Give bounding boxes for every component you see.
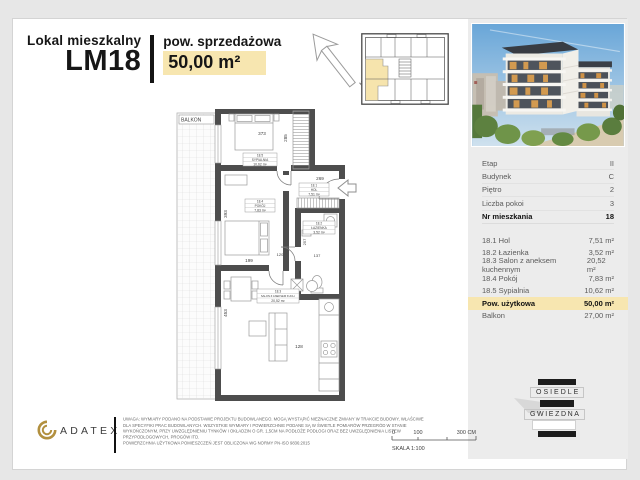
info-row-liczba-pokoi: Liczba pokoi 3 — [482, 197, 614, 210]
dimension-label: 453 — [223, 309, 228, 317]
svg-text:7,83 m²: 7,83 m² — [254, 208, 266, 212]
svg-text:POKÓJ: POKÓJ — [255, 203, 266, 208]
key-plan — [361, 33, 449, 105]
disclaimer-text: UWAGA: WYMIARY PODANO NA PODSTAWIE PROJE… — [123, 417, 375, 447]
svg-text:SYPIALNIA: SYPIALNIA — [252, 158, 269, 162]
building-photo — [471, 23, 625, 147]
svg-text:HOL: HOL — [311, 188, 318, 192]
svg-text:18.3: 18.3 — [275, 290, 281, 294]
estate-name-line2: GWIEZDNA — [524, 409, 585, 420]
dimension-label: 285 — [283, 134, 288, 142]
info-row-budynek: Budynek C — [482, 170, 614, 183]
balcony: BALKON — [177, 113, 217, 399]
header-divider — [150, 35, 154, 83]
info-row-etap: Etap II — [482, 157, 614, 170]
svg-text:10,62 m²: 10,62 m² — [253, 162, 267, 166]
unit-id: LM18 — [27, 48, 141, 76]
info-value: 18 — [606, 212, 614, 221]
info-value: C — [609, 172, 614, 181]
adatex-logo-icon — [37, 420, 57, 440]
dimension-label: 373 — [258, 131, 266, 136]
info-row-pietro: Piętro 2 — [482, 184, 614, 197]
sales-area-label: pow. sprzedażowa — [163, 34, 281, 49]
total-area-label: Pow. użytkowa — [482, 299, 535, 308]
svg-text:SALON Z ANEKSEM KUCH.: SALON Z ANEKSEM KUCH. — [261, 294, 296, 298]
plan-sheet: Lokal mieszkalny LM18 pow. sprzedażowa 5… — [12, 18, 627, 470]
pokoj-furniture — [225, 175, 269, 255]
footer-divider — [114, 417, 116, 453]
building-photo-art — [472, 24, 624, 146]
balcony-label: BALKON — [181, 118, 202, 124]
header: Lokal mieszkalny LM18 pow. sprzedażowa 5… — [27, 33, 281, 83]
dimension-label: 257 — [302, 238, 307, 245]
info-value: 2 — [610, 185, 614, 194]
unit-info-table: Etap II Budynek C Piętro 2 Liczba pokoi … — [482, 157, 614, 224]
info-label: Budynek — [482, 172, 511, 181]
total-area-value: 50,00 m² — [584, 299, 614, 308]
scale-end: 300 CM — [457, 430, 477, 436]
svg-text:7,51 m²: 7,51 m² — [308, 192, 320, 196]
sales-area-value: 50,00 m² — [163, 51, 266, 75]
room-area: 10,62 m² — [584, 286, 614, 295]
info-row-nr-mieszkania: Nr mieszkania 18 — [482, 211, 614, 224]
room-row-sypialnia: 18.5 Sypialnia 10,62 m² — [482, 284, 614, 297]
disclaimer-line: UWAGA: WYMIARY PODANO NA PODSTAWIE PROJE… — [123, 417, 375, 423]
floor-plan: BALKON — [147, 101, 379, 413]
room-area: 20,52 m² — [587, 256, 614, 274]
dimension-label: 199 — [245, 258, 253, 263]
svg-text:ŁAZIENKA: ŁAZIENKA — [311, 226, 327, 230]
estate-logo: OSIEDLE GWIEZDNA — [514, 379, 592, 441]
room-label-pokoj: 18.4 POKÓJ 7,83 m² — [245, 199, 275, 212]
dimension-label: 137 — [314, 253, 321, 258]
room-label-lazienka: 18.2 ŁAZIENKA 3,52 m² — [303, 221, 335, 234]
dimension-label: 128 — [295, 344, 303, 349]
info-value: II — [610, 159, 614, 168]
svg-text:3,52 m²: 3,52 m² — [313, 230, 325, 234]
room-row-hol: 18.1 Hol 7,51 m² — [482, 234, 614, 247]
logo-bar — [538, 379, 576, 385]
dimension-label: 393 — [223, 210, 228, 218]
svg-text:18.4: 18.4 — [257, 200, 263, 204]
logo-bar — [540, 400, 574, 407]
svg-text:20,52 m²: 20,52 m² — [271, 299, 285, 303]
room-label: 18.4 Pokój — [482, 274, 517, 283]
info-label: Piętro — [482, 185, 502, 194]
north-arrow: N — [308, 23, 366, 101]
dimension-label: 269 — [316, 176, 324, 181]
balcony-area-value: 27,00 m² — [584, 311, 614, 320]
windows — [215, 125, 221, 369]
svg-text:18.5: 18.5 — [257, 154, 263, 158]
scale-caption: SKALA 1:100 — [392, 446, 425, 452]
svg-text:18.2: 18.2 — [316, 222, 322, 226]
room-label: 18.1 Hol — [482, 236, 510, 245]
info-label: Liczba pokoi — [482, 199, 524, 208]
disclaimer-line: WYKOŃCZONYM, PRZY UWZGLĘDNIENIU TYNKÓW I… — [123, 429, 375, 435]
disclaimer-line: POWIERZCHNIA UŻYTKOWA POMIESZCZEŃ JEST O… — [123, 441, 375, 447]
estate-name-line1: OSIEDLE — [530, 387, 584, 398]
scale-start: 0 — [392, 430, 395, 436]
info-value: 3 — [610, 199, 614, 208]
room-areas-table: 18.1 Hol 7,51 m² 18.2 Łazienka 3,52 m² 1… — [482, 234, 614, 322]
info-label: Etap — [482, 159, 497, 168]
room-area: 7,83 m² — [589, 274, 614, 283]
balcony-area-label: Balkon — [482, 311, 505, 320]
developer-brand: ADATEX — [60, 425, 120, 437]
sidebar: Etap II Budynek C Piętro 2 Liczba pokoi … — [468, 19, 628, 459]
hall-wardrobe — [297, 198, 339, 208]
scale-bar: 0 100 300 CM SKALA 1:100 — [391, 426, 477, 456]
room-label: 18.3 Salon z aneksem kuchennym — [482, 256, 587, 274]
logo-bar — [538, 431, 576, 437]
room-label-salon: 18.3 SALON Z ANEKSEM KUCH. 20,52 m² — [257, 289, 299, 303]
room-label-sypialnia: 18.5 SYPIALNIA 10,62 m² — [243, 153, 277, 166]
room-area: 7,51 m² — [589, 236, 614, 245]
info-label: Nr mieszkania — [482, 212, 532, 221]
total-area-row: Pow. użytkowa 50,00 m² — [468, 297, 628, 310]
room-label: 18.5 Sypialnia — [482, 286, 529, 295]
room-label-hol: 18.1 HOL 7,51 m² — [299, 183, 329, 196]
dimension-label: 120 — [277, 252, 284, 257]
scale-mid: 100 — [413, 430, 422, 436]
balcony-area-row: Balkon 27,00 m² — [482, 310, 614, 323]
logo-white-box — [532, 420, 576, 430]
room-row-salon: 18.3 Salon z aneksem kuchennym 20,52 m² — [482, 259, 614, 272]
svg-text:18.1: 18.1 — [311, 184, 317, 188]
